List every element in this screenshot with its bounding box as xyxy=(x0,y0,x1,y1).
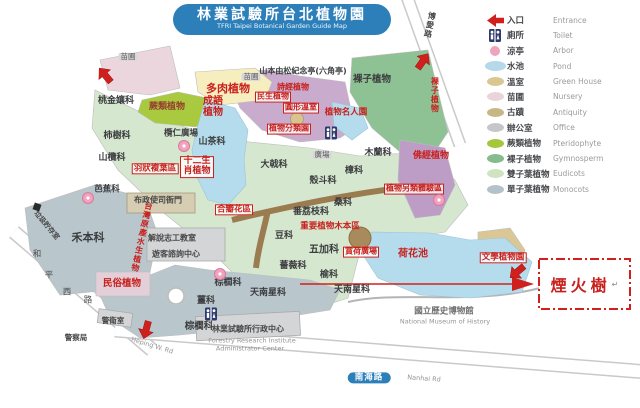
ellipse xyxy=(483,92,507,101)
entrance-arrow-icon xyxy=(483,14,507,27)
legend-label-zh: 古蹟 xyxy=(507,106,553,118)
building-admin-center xyxy=(195,311,300,340)
legend-label-en: Pond xyxy=(553,62,571,71)
legend-label-zh: 單子葉植物 xyxy=(507,183,553,195)
legend-label-en: Antiquity xyxy=(553,108,587,117)
legend-item-pond: 水池Pond xyxy=(483,61,639,71)
legend-label-zh: 入口 xyxy=(507,14,553,26)
fireworks-tree-label: 煙火樹 xyxy=(551,272,611,296)
legend-label-en: Green House xyxy=(553,77,602,86)
map-title-zh: 林業試驗所台北植物園 xyxy=(197,8,367,23)
map-title: 林業試驗所台北植物園 TFRI Taipei Botanical Garden … xyxy=(173,4,391,35)
ellipse xyxy=(483,169,507,178)
pond-lotus xyxy=(363,232,532,298)
road-nanhai xyxy=(115,330,640,372)
legend-label-zh: 水池 xyxy=(507,60,553,72)
legend-label-en: Gymnosperm xyxy=(553,154,603,163)
legend-item-greenhouse: 溫室Green House xyxy=(483,77,639,87)
legend-item-arbor: 涼亭Arbor xyxy=(483,46,639,56)
legend-item-entrance: 入口Entrance xyxy=(483,15,639,25)
ellipse-wide xyxy=(483,61,507,71)
legend-label-en: Arbor xyxy=(553,46,574,55)
ellipse xyxy=(483,108,507,117)
legend-item-monocots: 單子葉植物Monocots xyxy=(483,184,639,194)
legend-item-gymnosperm: 裸子植物Gymnosperm xyxy=(483,154,639,164)
legend-label-en: Office xyxy=(553,123,575,132)
building-provincial-admin-hall xyxy=(127,193,195,213)
circle xyxy=(483,46,507,56)
legend-label-zh: 苗圃 xyxy=(507,91,553,103)
building-visitor-center xyxy=(147,228,225,261)
legend-label-zh: 涼亭 xyxy=(507,45,553,57)
lotus-deck xyxy=(349,227,371,249)
fireworks-tree-callout: 煙火樹 ↵ xyxy=(539,259,630,309)
ellipse xyxy=(483,123,507,132)
building-round-greenhouse xyxy=(291,113,304,126)
toilet-icon xyxy=(483,29,507,42)
legend-label-zh: 辦公室 xyxy=(507,122,553,134)
legend-label-en: Toilet xyxy=(553,31,573,40)
ellipse xyxy=(483,154,507,163)
legend-label-en: Pteridophyte xyxy=(553,139,601,148)
ellipse xyxy=(483,139,507,148)
legend-label-zh: 溫室 xyxy=(507,76,553,88)
legend-item-eudicots: 雙子葉植物Eudicots xyxy=(483,169,639,179)
legend-label-en: Nursery xyxy=(553,92,583,101)
zone-folk-plants xyxy=(96,272,150,296)
legend-label-zh: 蕨類植物 xyxy=(507,137,553,149)
legend-label-zh: 裸子植物 xyxy=(507,153,553,165)
legend-label-en: Eudicots xyxy=(553,169,585,178)
map-title-en: TFRI Taipei Botanical Garden Guide Map xyxy=(217,23,347,31)
legend-item-antiquity: 古蹟Antiquity xyxy=(483,107,639,117)
legend-item-nursery: 苗圃Nursery xyxy=(483,92,639,102)
zone-nursery xyxy=(100,46,180,95)
legend-item-pteridophyte: 蕨類植物Pteridophyte xyxy=(483,138,639,148)
legend-label-en: Entrance xyxy=(553,16,587,25)
legend-label-en: Monocots xyxy=(553,185,589,194)
ellipse xyxy=(483,185,507,194)
text-cursor-mark: ↵ xyxy=(612,280,619,289)
legend-item-office: 辦公室Office xyxy=(483,123,639,133)
botanical-garden-guide-map: 林業試驗所台北植物園 TFRI Taipei Botanical Garden … xyxy=(0,0,640,408)
legend-label-zh: 雙子葉植物 xyxy=(507,168,553,180)
roundabout xyxy=(168,288,184,304)
legend-item-toilet: 廁所Toilet xyxy=(483,30,639,40)
legend-label-zh: 廁所 xyxy=(507,29,553,41)
ellipse xyxy=(483,77,507,86)
map-legend: 入口Entrance廁所Toilet涼亭Arbor水池Pond溫室Green H… xyxy=(483,15,639,194)
